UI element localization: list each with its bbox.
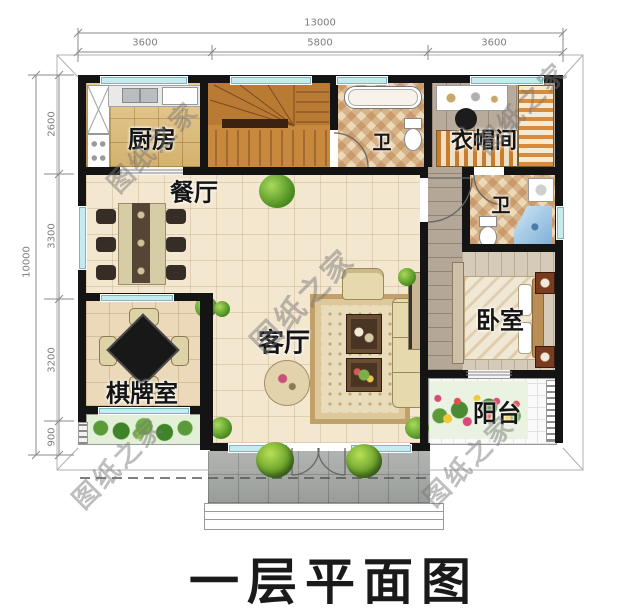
coffee-table — [346, 314, 382, 354]
chess-room-label: 棋牌室 — [106, 374, 178, 409]
bedroom-wardrobe — [452, 262, 464, 364]
potted-plant — [210, 417, 232, 439]
dining-chair — [96, 237, 116, 252]
entrance-bush — [256, 442, 294, 478]
stove-burners — [87, 134, 110, 168]
toilet-bowl — [404, 128, 422, 151]
wall — [510, 370, 555, 378]
wall — [200, 83, 208, 167]
dining-label: 餐厅 — [170, 173, 218, 208]
wall — [462, 167, 474, 175]
dim-top-seg: 3600 — [481, 38, 506, 49]
dining-table-runner — [132, 203, 150, 283]
bedroom-label: 卧室 — [476, 301, 524, 336]
dim-left-seg: 900 — [47, 427, 58, 446]
window — [100, 76, 188, 85]
coffee-table-flowers — [346, 358, 382, 392]
wall — [504, 167, 555, 175]
entrance-porch-paving — [208, 451, 430, 503]
nightstand — [535, 346, 555, 368]
nightstand — [535, 272, 555, 294]
dim-left-seg: 3200 — [47, 347, 58, 372]
kitchen-sink — [122, 88, 158, 103]
wall — [462, 244, 555, 252]
potted-plant — [398, 268, 416, 286]
window — [556, 206, 565, 240]
dining-chair — [96, 265, 116, 280]
entrance-bush — [346, 444, 382, 478]
wall — [428, 370, 468, 378]
wall — [420, 167, 428, 178]
dim-left-seg: 3300 — [47, 223, 58, 248]
wall — [330, 83, 338, 130]
bathtub-inner — [348, 89, 418, 106]
window — [78, 206, 87, 270]
window — [230, 76, 312, 85]
window — [100, 294, 174, 302]
wall — [210, 443, 228, 451]
wall — [208, 167, 338, 175]
balcony-door-opening — [468, 370, 510, 378]
dim-left-seg: 2600 — [47, 111, 58, 136]
bath-top-label: 卫 — [372, 128, 391, 155]
wash-basin — [528, 178, 554, 202]
dining-chair — [166, 209, 186, 224]
wall — [462, 175, 470, 252]
potted-plant — [214, 301, 230, 317]
entrance-step — [204, 519, 444, 530]
wall — [410, 443, 430, 451]
wall-hatch — [78, 422, 88, 445]
round-side-table — [264, 360, 310, 406]
wall — [424, 83, 432, 167]
window — [336, 76, 388, 85]
plan-title: 一层平面图 — [189, 542, 479, 614]
dim-left-total: 10000 — [22, 246, 33, 278]
main-door-opening — [287, 443, 349, 451]
wall — [338, 167, 428, 175]
floor-plan-canvas: 厨房 餐厅 卫 衣帽间 卫 卧室 棋牌室 客厅 阳台 图纸之家 图纸之家 图纸之… — [0, 0, 640, 616]
stairs-floor — [208, 83, 330, 167]
wall — [200, 293, 213, 450]
wall — [555, 83, 563, 443]
dining-chair — [166, 237, 186, 252]
dim-top-seg: 5800 — [307, 38, 332, 49]
dining-chair — [166, 265, 186, 280]
bath-right-label: 卫 — [491, 191, 510, 218]
potted-plant — [259, 174, 295, 208]
dim-top-seg: 3600 — [132, 38, 157, 49]
dining-chair — [96, 209, 116, 224]
fridge-cabinet — [87, 85, 110, 134]
wall — [420, 222, 428, 443]
dim-top-total: 13000 — [304, 18, 336, 29]
